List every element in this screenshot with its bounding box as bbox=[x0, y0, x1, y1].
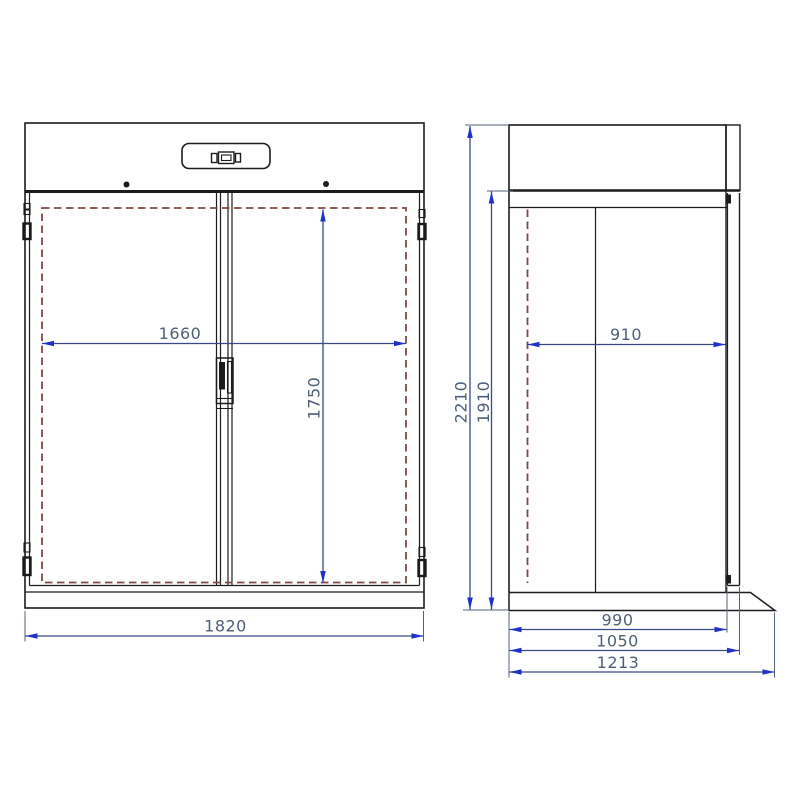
control-panel-button-left bbox=[212, 154, 218, 163]
side-base-with-ramp bbox=[509, 593, 775, 611]
screw-dot-left bbox=[124, 182, 130, 188]
control-panel-display-inner bbox=[222, 155, 232, 161]
side-hinge-bottom bbox=[726, 575, 731, 584]
front-door-divider bbox=[217, 193, 234, 586]
control-panel-housing bbox=[182, 144, 270, 169]
door-handle-grip bbox=[219, 362, 225, 390]
dim-label-depth-with-door: 1050 bbox=[596, 632, 639, 651]
drawing-canvas: 1660 1750 1820 bbox=[0, 0, 800, 800]
refrigerator-technical-drawing: 1660 1750 1820 bbox=[0, 0, 800, 800]
front-interior-dashed-outline bbox=[42, 208, 406, 583]
front-hinges bbox=[24, 204, 426, 577]
front-dimensions: 1660 1750 1820 bbox=[25, 210, 424, 642]
side-door bbox=[726, 193, 740, 586]
dim-label-overall-width: 1820 bbox=[204, 617, 247, 636]
control-panel-button-right bbox=[236, 154, 241, 163]
dim-label-interior-width: 1660 bbox=[159, 324, 202, 343]
side-cabinet-outline bbox=[509, 125, 775, 611]
side-hinge-top bbox=[726, 195, 731, 204]
screw-dot-right bbox=[323, 181, 329, 187]
side-view: 910 2210 1910 990 1050 1213 bbox=[452, 125, 776, 678]
front-screw-dots bbox=[124, 181, 330, 188]
hinge-left-bottom bbox=[24, 558, 31, 576]
hinge-right-top bbox=[419, 224, 426, 239]
hinge-right-bottom bbox=[419, 560, 426, 576]
dim-label-interior-height: 1750 bbox=[305, 377, 324, 420]
hinge-left-top bbox=[24, 224, 31, 240]
side-top-compartment-front-strip bbox=[726, 125, 740, 191]
dim-label-interior-depth: 910 bbox=[610, 325, 642, 344]
dim-label-overall-height: 2210 bbox=[452, 381, 471, 424]
dim-label-overall-depth: 1213 bbox=[597, 653, 640, 672]
control-panel-display bbox=[219, 152, 235, 164]
front-control-panel bbox=[182, 144, 270, 169]
side-top-compartment bbox=[509, 125, 726, 191]
dim-label-body-depth: 990 bbox=[601, 611, 633, 630]
front-view: 1660 1750 1820 bbox=[24, 123, 426, 642]
dim-label-body-height: 1910 bbox=[474, 381, 493, 424]
